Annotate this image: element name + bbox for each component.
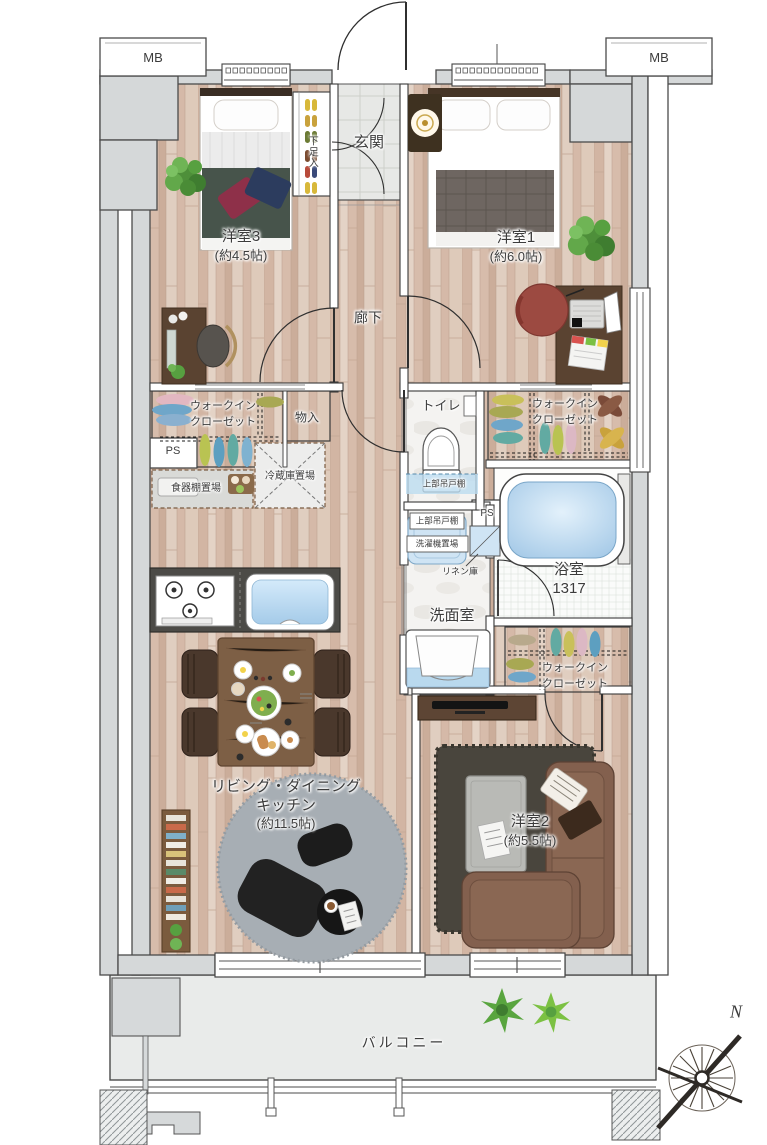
bedroom3-name-label: 洋室3 — [222, 229, 260, 245]
kitchen-counter — [150, 568, 340, 632]
storage-label: 物入 — [295, 412, 319, 425]
bedroom2-name-label: 洋室2 — [511, 814, 549, 830]
ldk-label-1: リビング・ダイニング — [211, 779, 361, 795]
linen-label: リネン庫 — [442, 567, 478, 576]
ldk-label-2: キッチン — [256, 798, 316, 814]
entrance-label: 玄関 — [354, 135, 384, 151]
wic-right-lower-label-1: ウォークイン — [542, 663, 608, 675]
upper-cabinet-toilet-label: 上部吊戸棚 — [423, 480, 466, 489]
fridge-space-label: 冷蔵庫置場 — [265, 472, 315, 483]
bathroom-size-label: 1317 — [552, 581, 585, 597]
bedroom3-size-label: (約4.5帖) — [215, 249, 268, 263]
shoe-cabinet-label: 下足入 — [306, 136, 317, 169]
tv-board — [418, 696, 536, 720]
wic-left-label-1: ウォークイン — [190, 401, 256, 413]
bedroom1-name-label: 洋室1 — [497, 230, 535, 246]
toilet-label: トイレ — [421, 399, 460, 413]
compass-north-label: N — [730, 1003, 742, 1022]
window-bedroom1-right — [630, 288, 650, 472]
wic-right-upper-label-1: ウォークイン — [532, 399, 598, 411]
washer-space-label: 洗濯機置場 — [416, 540, 459, 549]
bedside-lamp — [408, 94, 442, 152]
wic-right-lower-label-2: クローゼット — [542, 679, 608, 691]
mb-left-label: MB — [143, 51, 163, 65]
window-bedroom3-top — [222, 64, 290, 86]
bedroom1-size-label: (約6.0帖) — [490, 250, 543, 264]
bathtub — [500, 474, 630, 566]
sink-icon — [246, 574, 334, 630]
mb-right-label: MB — [649, 51, 669, 65]
bed-bedroom3 — [200, 88, 292, 250]
wic-left-label-2: クローゼット — [190, 417, 256, 429]
floor-plan: MB MB 玄関 下足入 洋室3 (約4.5帖) 洋室1 (約6.0帖) 廊下 … — [0, 0, 767, 1145]
washbasin — [406, 630, 490, 688]
upper-cabinet-washer-label: 上部吊戸棚 — [416, 517, 459, 526]
bedroom2-size-label: (約5.5帖) — [504, 834, 557, 848]
bed-bedroom1 — [428, 88, 560, 248]
ps-right-label: PS — [480, 509, 493, 520]
bookshelf — [162, 810, 190, 952]
window-bedroom2-balcony — [470, 953, 565, 977]
food-tray-icon — [228, 474, 254, 494]
front-door — [338, 2, 406, 70]
washroom-label: 洗面室 — [429, 608, 474, 624]
bathroom-name-label: 浴室 — [554, 562, 584, 578]
wic-right-upper-label-2: クローゼット — [532, 415, 598, 427]
balcony-label: バルコニー — [362, 1036, 447, 1051]
compass-rose — [658, 1036, 742, 1128]
ps-left-label: PS — [166, 446, 181, 458]
stove-icon — [156, 576, 234, 626]
window-bedroom1-top — [452, 44, 545, 86]
balcony-pole-holders — [266, 1078, 404, 1116]
cupboard-space-label: 食器棚置場 — [171, 484, 221, 495]
ldk-size-label: (約11.5帖) — [257, 817, 316, 831]
corridor-label: 廊下 — [354, 311, 382, 326]
floor-plan-graphic — [0, 0, 767, 1145]
side-table — [317, 889, 363, 935]
chair-bedroom1 — [516, 284, 568, 336]
